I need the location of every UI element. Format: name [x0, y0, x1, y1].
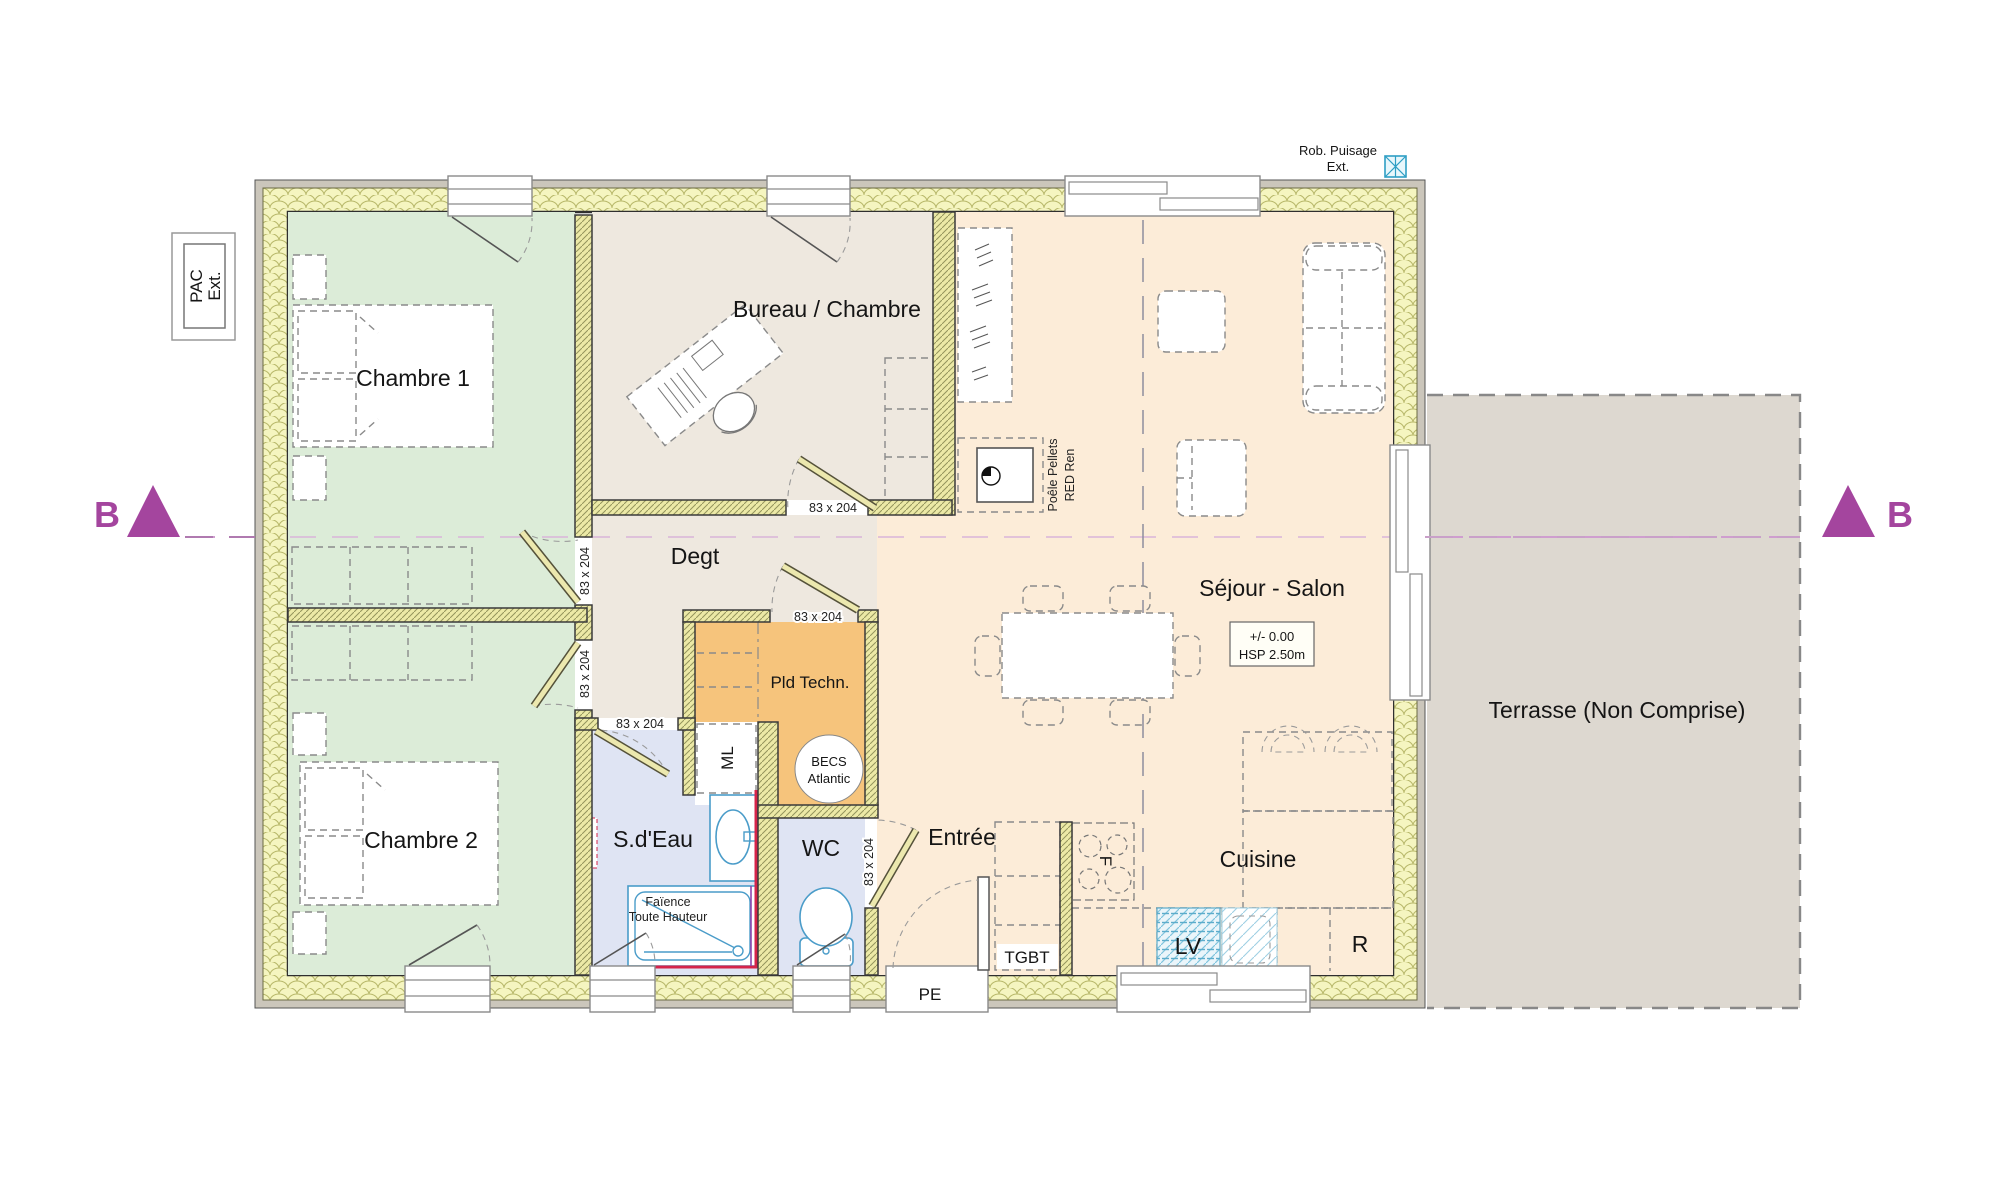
faience-label-line1: Faïence	[645, 895, 690, 909]
wc-label: WC	[802, 835, 840, 861]
wall	[758, 805, 878, 818]
window-chambre1	[448, 176, 532, 216]
section-letter: B	[94, 494, 120, 535]
floor-plan-page: Terrasse (Non Comprise) Chambre 1	[0, 0, 2000, 1200]
wall	[858, 610, 878, 622]
pld-techn-label: Pld Techn.	[770, 673, 849, 692]
wall	[575, 718, 598, 730]
terrace-label: Terrasse (Non Comprise)	[1489, 697, 1746, 723]
becs-label-line1: BECS	[811, 754, 847, 769]
ceiling-height: HSP 2.50m	[1239, 647, 1305, 662]
water-heater-icon	[795, 735, 863, 803]
cuisine-label: Cuisine	[1220, 846, 1297, 872]
window-bureau	[767, 176, 850, 216]
dishwasher-label: LV	[1175, 933, 1202, 959]
wall	[683, 622, 695, 795]
level-value: +/- 0.00	[1250, 629, 1294, 644]
entrance-door-leaf	[978, 877, 989, 970]
window-chambre2	[405, 966, 490, 1012]
poele-label-line1: Poêle Pellets	[1046, 439, 1060, 512]
wall	[1060, 822, 1072, 975]
room-entree	[877, 515, 955, 975]
wall	[575, 710, 592, 975]
nightstand	[293, 713, 326, 755]
toilet-icon	[800, 888, 852, 946]
terrace-area: Terrasse (Non Comprise)	[1427, 395, 1800, 1008]
door-size-label: 83 x 204	[616, 717, 664, 731]
wall	[865, 622, 878, 805]
poele-label-line2: RED Ren	[1063, 449, 1077, 502]
section-arrow-icon	[1822, 485, 1875, 537]
wall	[758, 722, 778, 975]
section-marker-left: B	[94, 485, 180, 537]
faience-label-line2: Toute Hauteur	[629, 910, 708, 924]
bathroom-sink-icon	[716, 810, 750, 864]
entree-label: Entrée	[928, 824, 996, 850]
chambre2-label: Chambre 2	[364, 827, 478, 853]
window-sdeau	[590, 966, 655, 1012]
rob-puisage-label-line2: Ext.	[1327, 159, 1349, 174]
window-wc	[793, 966, 850, 1012]
pac-label-line2: Ext.	[205, 271, 224, 300]
door-size-label: 83 x 204	[794, 610, 842, 624]
floor-plan-drawing: Terrasse (Non Comprise) Chambre 1	[0, 0, 2000, 1200]
section-marker-right: B	[1822, 485, 1913, 537]
nightstand	[293, 456, 326, 500]
becs-label-line2: Atlantic	[808, 771, 851, 786]
coffee-table	[1158, 291, 1225, 352]
wall	[865, 908, 878, 975]
oven-label: F	[1096, 856, 1115, 866]
wall	[592, 500, 786, 515]
tgbt-label: TGBT	[1004, 948, 1049, 967]
door-size-label: 83 x 204	[578, 547, 592, 595]
sdeau-label: S.d'Eau	[613, 826, 693, 852]
door-size-label: 83 x 204	[809, 501, 857, 515]
entrance-door-label: PE	[919, 985, 942, 1004]
dining-table	[1002, 613, 1173, 698]
wall	[678, 718, 695, 730]
wall	[933, 212, 955, 515]
ml-label: ML	[718, 746, 737, 770]
section-letter: B	[1887, 494, 1913, 535]
sejour-label: Séjour - Salon	[1199, 575, 1345, 601]
pac-label-line1: PAC	[187, 269, 206, 303]
chambre1-label: Chambre 1	[356, 365, 470, 391]
wall	[288, 608, 587, 622]
door-size-label: 83 x 204	[862, 838, 876, 886]
door-size-label: 83 x 204	[578, 650, 592, 698]
nightstand	[293, 255, 326, 299]
wall	[868, 500, 952, 515]
bureau-label: Bureau / Chambre	[733, 296, 921, 322]
kitchen-sink-icon	[1222, 908, 1277, 971]
nightstand	[293, 912, 326, 954]
outdoor-tap-icon	[1385, 156, 1406, 177]
room-pld-techn-upper	[695, 622, 865, 722]
fridge-label: R	[1352, 931, 1369, 957]
armchair	[1177, 440, 1246, 516]
degt-label: Degt	[671, 543, 720, 569]
rob-puisage-label-line1: Rob. Puisage	[1299, 143, 1377, 158]
wall	[575, 215, 592, 537]
wall	[683, 610, 770, 622]
section-arrow-icon	[127, 485, 180, 537]
